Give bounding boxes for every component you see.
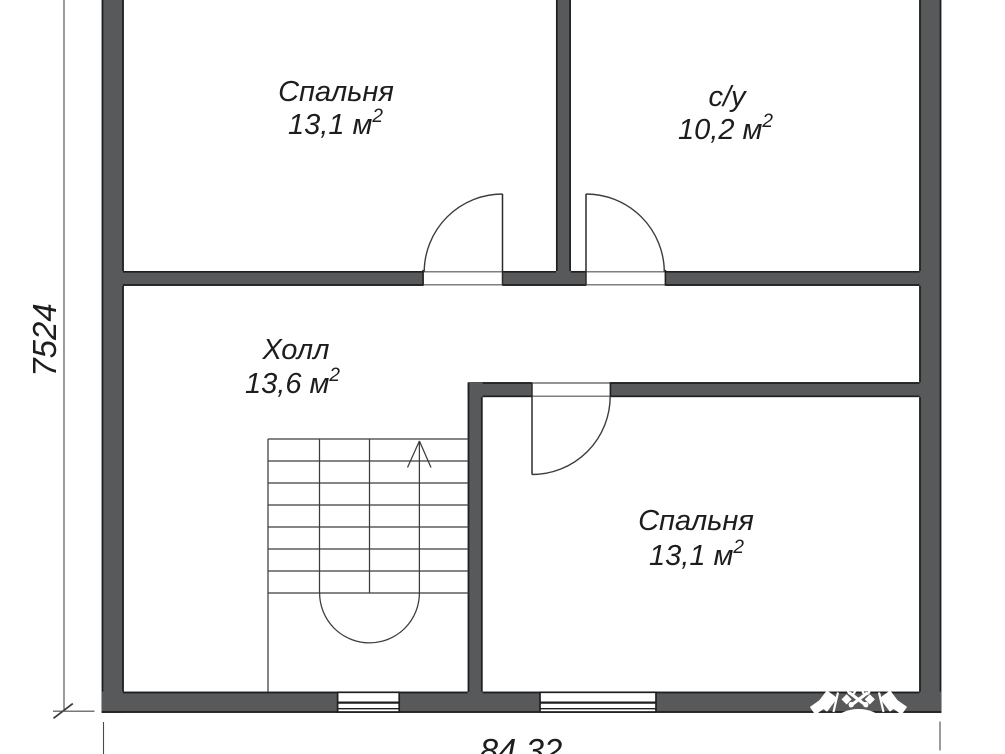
svg-text:с/у: с/у [708,81,747,113]
svg-text:Спальня: Спальня [278,76,394,108]
svg-text:13,6 м2: 13,6 м2 [245,365,340,400]
svg-text:10,2 м2: 10,2 м2 [678,111,773,146]
svg-text:13,1 м2: 13,1 м2 [649,537,744,572]
svg-text:13,1 м2: 13,1 м2 [288,106,383,141]
svg-text:84,32: 84,32 [480,732,563,754]
svg-text:Холл: Холл [262,334,330,366]
svg-text:7524: 7524 [26,303,63,376]
svg-text:Спальня: Спальня [638,505,754,537]
